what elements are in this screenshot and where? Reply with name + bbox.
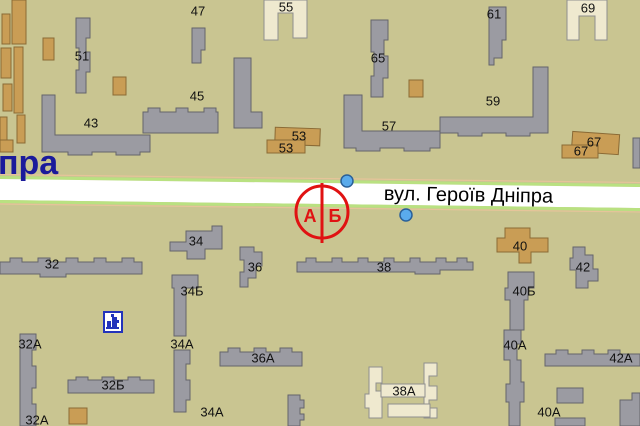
building-label: 40Б — [513, 285, 536, 298]
building-label: 38А — [392, 385, 415, 398]
building-label: 42 — [576, 261, 590, 274]
metro-exit-dot[interactable] — [400, 209, 412, 221]
building-label: 61 — [487, 8, 501, 21]
building-label: 45 — [190, 90, 204, 103]
building-label: 67 — [574, 145, 588, 158]
metro-exit-dot[interactable] — [341, 175, 353, 187]
building-label: 40А — [503, 339, 526, 352]
building-label: 34 — [189, 235, 203, 248]
building-label: 67 — [587, 136, 601, 149]
street-fragment-label: пра — [0, 146, 58, 180]
building-label: 40 — [513, 240, 527, 253]
landmark-icon[interactable] — [103, 311, 123, 333]
map-canvas[interactable]: А Б вул. Героїв Дніпра пра 4751554543656… — [0, 0, 640, 426]
building-label: 34Б — [181, 285, 204, 298]
buildings-layer-south — [0, 226, 640, 426]
building-label: 47 — [191, 5, 205, 18]
building-label: 69 — [581, 2, 595, 15]
building-label: 34А — [170, 338, 193, 351]
building-label: 34А — [200, 406, 223, 419]
building-label: 53 — [279, 142, 293, 155]
building-label: 40А — [537, 406, 560, 419]
building-label: 59 — [486, 95, 500, 108]
building-label: 43 — [84, 117, 98, 130]
map-graphics — [0, 0, 640, 426]
metro-letter-a: А — [304, 207, 317, 225]
building-label: 57 — [382, 120, 396, 133]
building-label: 32Б — [102, 379, 125, 392]
street-name-label: вул. Героїв Дніпра — [384, 184, 554, 207]
building-label: 36 — [248, 261, 262, 274]
building-label: 53 — [292, 130, 306, 143]
building-label: 55 — [279, 1, 293, 14]
monument-glyph — [105, 313, 121, 331]
building-label: 42А — [609, 352, 632, 365]
buildings-layer — [0, 0, 640, 168]
metro-letter-b: Б — [329, 207, 342, 225]
building-label: 38 — [377, 261, 391, 274]
building-label: 32А — [25, 414, 48, 426]
building-label: 65 — [371, 52, 385, 65]
building-label: 32 — [45, 258, 59, 271]
building-label: 36А — [251, 352, 274, 365]
building-label: 32А — [18, 338, 41, 351]
building-label: 51 — [75, 50, 89, 63]
